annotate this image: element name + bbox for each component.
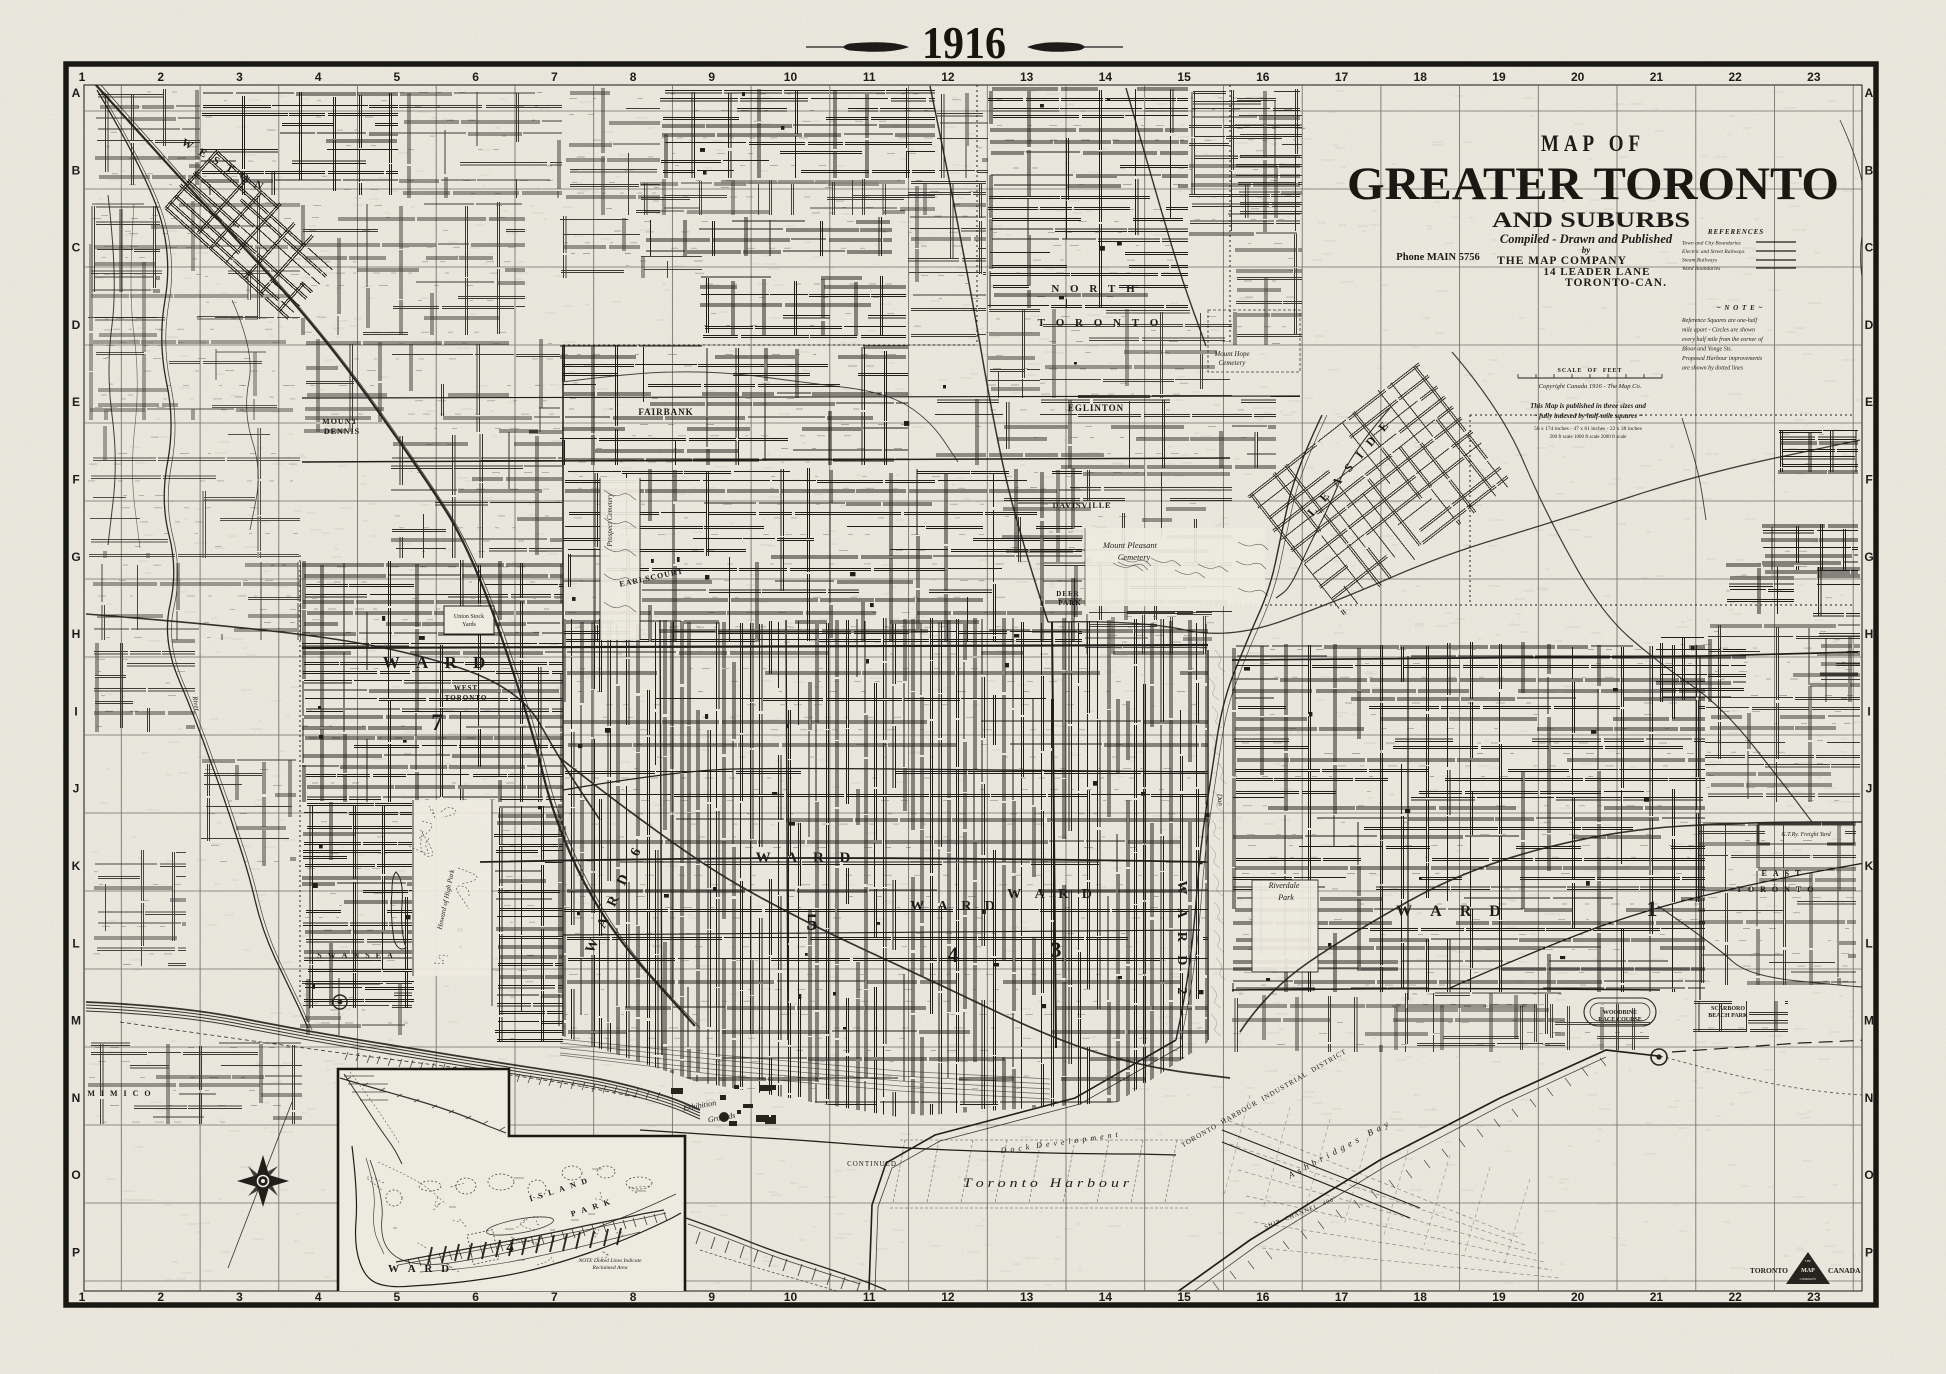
svg-text:W A R D: W A R D [1007, 887, 1097, 902]
svg-text:19: 19 [1492, 70, 1506, 84]
svg-text:6: 6 [472, 70, 479, 84]
svg-text:O: O [1864, 1168, 1873, 1182]
svg-text:8: 8 [630, 1290, 637, 1304]
svg-text:A: A [72, 86, 81, 100]
svg-text:PARK: PARK [1058, 599, 1081, 607]
svg-text:17: 17 [1335, 1290, 1349, 1304]
svg-text:C: C [1865, 241, 1874, 255]
svg-text:4: 4 [948, 942, 959, 967]
svg-text:MAP: MAP [1801, 1268, 1815, 1274]
svg-text:200 ft scale 1000 ft: 200 ft scale 1000 ft scale 2000 ft scale [1550, 435, 1627, 440]
svg-text:CONTINUED: CONTINUED [847, 1160, 897, 1168]
svg-text:AND SUBURBS: AND SUBURBS [1492, 207, 1690, 232]
svg-text:H: H [72, 627, 81, 641]
svg-text:17: 17 [1335, 70, 1349, 84]
svg-text:4: 4 [315, 70, 322, 84]
svg-text:M: M [71, 1014, 81, 1028]
svg-text:3: 3 [236, 1290, 243, 1304]
svg-text:56 x 174 inches - 47 x 61 in: 56 x 174 inches - 47 x 61 inches - 22 x … [1534, 426, 1642, 432]
svg-text:W A R D: W A R D [756, 850, 857, 866]
svg-text:T O R O N T O: T O R O N T O [1737, 885, 1816, 894]
svg-text:DAVISVILLE: DAVISVILLE [1053, 501, 1112, 510]
svg-text:Mount Pleasant: Mount Pleasant [1102, 540, 1158, 550]
svg-text:W A R D: W A R D [910, 899, 1000, 914]
svg-text:Town and City Boundaries: Town and City Boundaries [1682, 241, 1741, 247]
svg-text:5: 5 [394, 1290, 401, 1304]
svg-text:L: L [72, 936, 79, 950]
svg-text:W A R D: W A R D [388, 1263, 452, 1275]
svg-text:5: 5 [806, 910, 818, 935]
svg-text:I: I [74, 704, 77, 718]
svg-text:15: 15 [1177, 70, 1191, 84]
svg-text:T O R O N T O: T O R O N T O [1038, 317, 1163, 329]
svg-text:1: 1 [1647, 896, 1658, 921]
svg-text:O: O [71, 1168, 80, 1182]
svg-text:DEER: DEER [1056, 590, 1079, 598]
svg-text:6: 6 [472, 1290, 479, 1304]
svg-text:K: K [1865, 859, 1874, 873]
svg-text:Steam Railways: Steam Railways [1682, 258, 1717, 264]
svg-text:RACE COURSE: RACE COURSE [1598, 1017, 1642, 1023]
svg-text:REFERENCES: REFERENCES [1707, 228, 1764, 236]
svg-text:MOUNT: MOUNT [322, 417, 358, 426]
svg-text:DENNIS: DENNIS [324, 427, 360, 436]
svg-text:10: 10 [784, 70, 798, 84]
svg-text:20: 20 [1571, 70, 1585, 84]
svg-text:1916: 1916 [922, 17, 1006, 68]
svg-text:Mount Hope: Mount Hope [1213, 350, 1249, 358]
svg-text:15: 15 [1177, 1290, 1191, 1304]
svg-text:9: 9 [708, 1290, 715, 1304]
svg-text:TORONTO-CAN.: TORONTO-CAN. [1565, 277, 1667, 289]
svg-text:P: P [72, 1246, 80, 1260]
svg-text:Riverdale: Riverdale [1268, 881, 1300, 890]
svg-text:D: D [1865, 318, 1874, 332]
svg-text:W A R D: W A R D [383, 653, 492, 672]
svg-text:C: C [72, 241, 81, 255]
svg-text:G: G [1864, 550, 1873, 564]
svg-text:7: 7 [431, 710, 443, 735]
svg-text:SCARBORO: SCARBORO [1711, 1006, 1745, 1012]
svg-text:G.T.Ry. Freight Yard: G.T.Ry. Freight Yard [1781, 832, 1831, 838]
svg-text:21: 21 [1650, 70, 1664, 84]
svg-text:8: 8 [630, 70, 637, 84]
svg-text:N: N [72, 1091, 81, 1105]
svg-text:EGLINTON: EGLINTON [1068, 403, 1124, 413]
svg-text:23: 23 [1807, 1290, 1821, 1304]
svg-text:9: 9 [708, 70, 715, 84]
svg-text:TORONTO: TORONTO [445, 694, 488, 702]
svg-text:B: B [1865, 163, 1874, 177]
svg-text:22: 22 [1728, 1290, 1742, 1304]
svg-text:SCALE OF FEET: SCALE OF FEET [1557, 368, 1622, 374]
svg-text:Cemetery: Cemetery [1219, 359, 1247, 367]
svg-text:7: 7 [551, 70, 558, 84]
svg-text:D: D [72, 318, 81, 332]
svg-text:This Map is published in three: This Map is published in three sizes and [1530, 402, 1646, 410]
svg-text:14: 14 [1099, 1290, 1113, 1304]
svg-text:K: K [72, 859, 81, 873]
svg-text:WOODBINE: WOODBINE [1603, 1010, 1637, 1016]
svg-text:W A R D: W A R D [1396, 903, 1508, 920]
svg-text:16: 16 [1256, 1290, 1270, 1304]
svg-text:M I M I C O: M I M I C O [87, 1089, 152, 1098]
svg-text:P: P [1865, 1246, 1873, 1260]
svg-text:E A S T: E A S T [1762, 869, 1803, 878]
svg-text:5: 5 [394, 70, 401, 84]
svg-text:T o r o n t o H a r b o u r: T o r o n t o H a r b o u r [963, 1176, 1129, 1190]
svg-text:WEST: WEST [454, 684, 478, 692]
svg-text:4: 4 [315, 1290, 322, 1304]
svg-text:Phone MAIN 5756: Phone MAIN 5756 [1396, 252, 1479, 263]
svg-text:H: H [1865, 627, 1874, 641]
svg-text:19: 19 [1492, 1290, 1506, 1304]
svg-text:13: 13 [1020, 70, 1034, 84]
svg-text:Prospect Cemetery: Prospect Cemetery [606, 493, 614, 548]
svg-text:E: E [72, 395, 80, 409]
svg-text:L: L [1865, 936, 1872, 950]
svg-text:13: 13 [1020, 1290, 1034, 1304]
svg-text:E: E [1865, 395, 1873, 409]
svg-text:Ward Boundaries: Ward Boundaries [1682, 266, 1720, 272]
svg-text:~ fully indexed by half-mile s: ~ fully indexed by half-mile squares ~ [1533, 412, 1642, 420]
svg-text:G: G [71, 550, 80, 564]
svg-text:W A R D 2: W A R D 2 [1174, 881, 1189, 1000]
svg-text:S W A N S E A: S W A N S E A [317, 951, 395, 960]
svg-text:NOTE Dotted Lines Indicate: NOTE Dotted Lines Indicate [577, 1258, 642, 1264]
svg-text:Cemetery: Cemetery [1118, 552, 1151, 562]
svg-text:Don: Don [1215, 792, 1224, 806]
svg-text:12: 12 [941, 1290, 955, 1304]
svg-text:M: M [1864, 1014, 1874, 1028]
svg-text:16: 16 [1256, 70, 1270, 84]
svg-text:3: 3 [1051, 937, 1062, 962]
svg-text:1: 1 [79, 70, 86, 84]
svg-text:Reference Squares are one-half: Reference Squares are one-half [1681, 317, 1758, 324]
svg-text:CANADA: CANADA [1828, 1266, 1861, 1275]
svg-text:2: 2 [157, 1290, 164, 1304]
svg-text:~ N O T E ~: ~ N O T E ~ [1717, 304, 1764, 312]
svg-text:Proposed Harbour improvements: Proposed Harbour improvements [1681, 356, 1763, 362]
svg-text:F: F [1865, 473, 1872, 487]
svg-text:N O R T H: N O R T H [1051, 283, 1138, 295]
svg-text:I: I [1867, 704, 1870, 718]
svg-text:MAP OF: MAP OF [1541, 131, 1645, 156]
svg-text:B: B [72, 163, 81, 177]
svg-text:21: 21 [1650, 1290, 1664, 1304]
svg-text:Yards: Yards [462, 622, 476, 628]
svg-text:Union Stock: Union Stock [454, 614, 484, 620]
svg-text:2: 2 [157, 70, 164, 84]
svg-text:Bloor and Yonge Sts.: Bloor and Yonge Sts. [1682, 347, 1732, 353]
svg-text:J: J [73, 782, 80, 796]
svg-text:F: F [72, 473, 79, 487]
svg-text:18: 18 [1414, 70, 1428, 84]
svg-text:COMPANY: COMPANY [1800, 1277, 1817, 1281]
svg-text:23: 23 [1807, 70, 1821, 84]
svg-text:3: 3 [236, 70, 243, 84]
svg-text:14: 14 [1099, 70, 1113, 84]
svg-text:are shown by dotted lines: are shown by dotted lines [1682, 366, 1744, 372]
svg-text:11: 11 [863, 70, 876, 84]
svg-text:J: J [1866, 782, 1873, 796]
svg-text:Park: Park [1277, 893, 1294, 902]
svg-text:by: by [1582, 245, 1592, 255]
svg-text:A: A [1865, 86, 1874, 100]
svg-text:7: 7 [551, 1290, 558, 1304]
svg-text:N: N [1865, 1091, 1874, 1105]
svg-text:Compiled - Drawn and Published: Compiled - Drawn and Published [1500, 232, 1673, 246]
svg-text:4: 4 [506, 1240, 514, 1256]
svg-text:20: 20 [1571, 1290, 1585, 1304]
svg-text:10: 10 [784, 1290, 798, 1304]
svg-text:Copyright Canada 1916 - The Ma: Copyright Canada 1916 - The Map Co. [1539, 383, 1642, 390]
svg-text:mile apart - Circles are shown: mile apart - Circles are shown [1682, 328, 1755, 334]
svg-text:BEACH PARK: BEACH PARK [1708, 1013, 1748, 1019]
svg-text:22: 22 [1728, 70, 1742, 84]
svg-text:18: 18 [1414, 1290, 1428, 1304]
svg-text:every half mile from the corne: every half mile from the corner of [1682, 336, 1764, 343]
svg-text:11: 11 [863, 1290, 876, 1304]
svg-text:GREATER TORONTO: GREATER TORONTO [1347, 158, 1839, 210]
svg-text:Electric and Street Railways: Electric and Street Railways [1681, 249, 1745, 255]
svg-text:Reclaimed Area: Reclaimed Area [592, 1265, 628, 1271]
svg-text:FAIRBANK: FAIRBANK [638, 407, 693, 417]
svg-text:12: 12 [941, 70, 955, 84]
svg-text:1: 1 [79, 1290, 86, 1304]
svg-text:THE: THE [1805, 1259, 1811, 1263]
svg-text:TORONTO: TORONTO [1750, 1266, 1788, 1275]
